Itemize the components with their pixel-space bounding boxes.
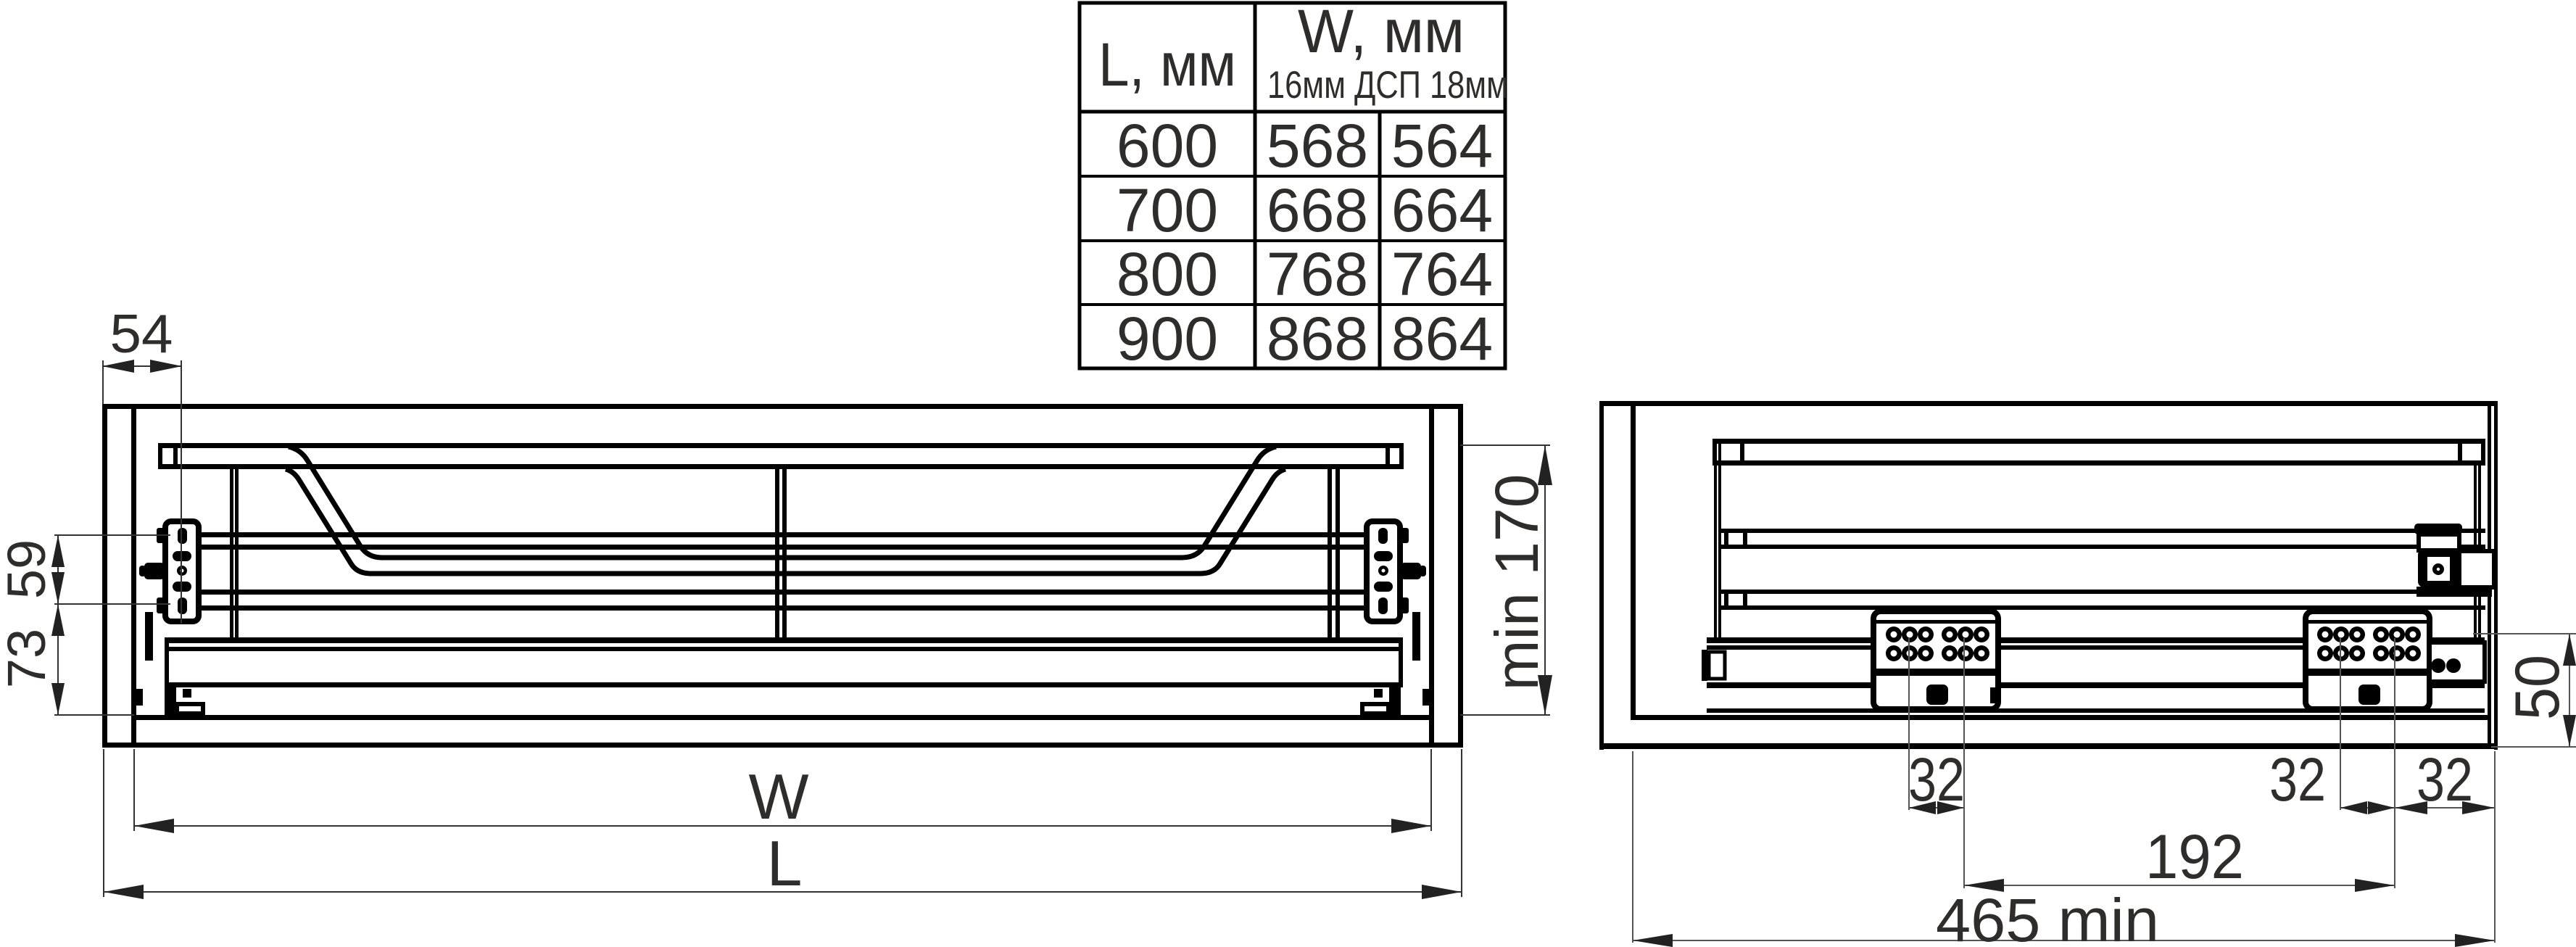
svg-text:864: 864 xyxy=(1391,305,1493,373)
svg-text:16мм ДСП 18мм: 16мм ДСП 18мм xyxy=(1267,64,1508,107)
svg-text:50: 50 xyxy=(2503,655,2572,720)
svg-text:768: 768 xyxy=(1267,240,1368,308)
svg-text:668: 668 xyxy=(1267,176,1368,244)
svg-text:59: 59 xyxy=(0,539,57,599)
svg-text:568: 568 xyxy=(1267,112,1368,180)
svg-text:32: 32 xyxy=(2269,745,2326,814)
svg-text:564: 564 xyxy=(1391,112,1493,180)
svg-text:800: 800 xyxy=(1117,240,1218,308)
svg-text:900: 900 xyxy=(1117,305,1218,373)
svg-text:600: 600 xyxy=(1117,112,1218,180)
svg-text:32: 32 xyxy=(1908,745,1965,814)
svg-text:W, мм: W, мм xyxy=(1298,0,1465,65)
svg-text:min 170: min 170 xyxy=(1483,474,1551,691)
svg-text:L, мм: L, мм xyxy=(1098,30,1236,99)
svg-text:73: 73 xyxy=(0,629,57,688)
svg-text:32: 32 xyxy=(2416,745,2473,814)
svg-text:W: W xyxy=(748,761,808,832)
svg-text:192: 192 xyxy=(2145,822,2244,892)
svg-text:664: 664 xyxy=(1391,176,1493,244)
svg-text:868: 868 xyxy=(1267,305,1368,373)
svg-text:L: L xyxy=(767,827,803,899)
svg-text:700: 700 xyxy=(1117,176,1218,244)
svg-text:465 min: 465 min xyxy=(1936,886,2159,947)
svg-text:764: 764 xyxy=(1391,240,1493,308)
svg-text:54: 54 xyxy=(110,303,173,364)
